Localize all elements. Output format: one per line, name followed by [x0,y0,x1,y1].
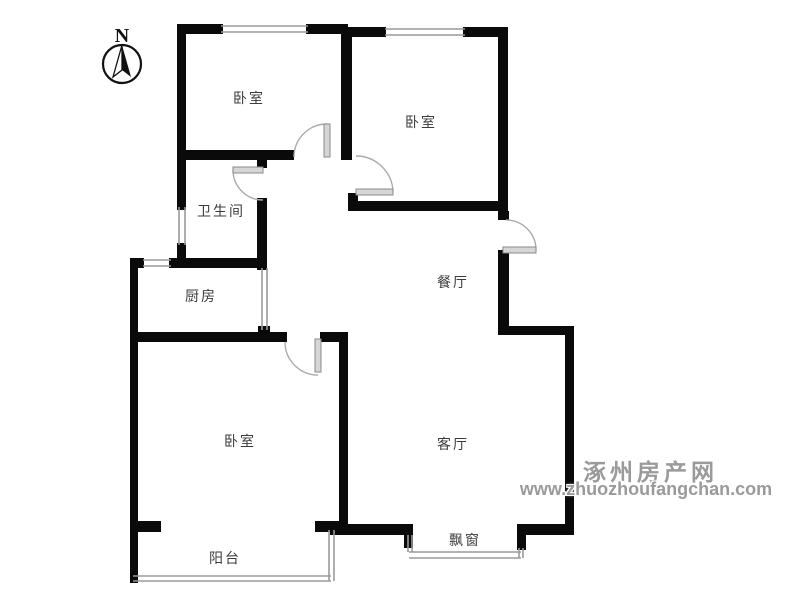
window-bedroom2-icon [385,29,465,35]
wall-segment [177,150,186,210]
door-arc-bedroom1-icon [294,124,327,157]
door-leaf-bedroom1-icon [324,124,330,157]
room-label-dining-room: 餐厅 [437,272,469,292]
door-leaf-bedroom3-icon [315,339,321,372]
bay-window-sill-icon [409,552,521,558]
door-arc-bathroom-icon [233,170,263,200]
wall-segment [498,250,509,330]
window-bathroom-icon [179,207,185,245]
wall-segment [517,524,526,550]
wall-segment [320,332,348,342]
room-label-bedroom-top-right: 卧室 [405,112,437,132]
room-label-bathroom: 卫生间 [197,201,245,221]
wall-segment [498,326,574,335]
wall-segment [341,27,352,160]
room-label-bedroom-top-left: 卧室 [233,88,265,108]
wall-segment [177,24,186,160]
wall-segment [257,198,267,270]
window-bedroom1-icon [221,26,308,32]
door-leaf-bathroom-icon [233,167,263,173]
wall-segment [498,211,509,220]
door-arc-entry-icon [506,220,536,250]
door-arc-bedroom3-icon [285,342,318,375]
room-label-living-room: 客厅 [437,434,469,454]
floor-plan-drawing: N [0,0,800,600]
room-label-bay-window: 飘窗 [449,530,481,550]
wall-segment [565,326,574,535]
north-compass-icon: N [103,25,141,83]
wall-segment [350,201,498,211]
wall-segment [257,150,267,168]
wall-segment [258,326,270,334]
door-arc-bedroom2-icon [356,156,393,193]
kitchen-sliding-door-icon [262,268,267,330]
wall-segment [130,258,138,583]
floor-plan: N 卧室 卧室 卫生间 厨房 餐厅 卧室 客厅 阳台 飘窗 涿州房产网 www.… [0,0,800,600]
balcony-rail-bottom-icon [133,576,331,581]
door-leaf-bedroom2-icon [356,189,393,195]
room-label-balcony: 阳台 [209,548,241,568]
window-kitchen-icon [143,260,171,266]
wall-segment [177,258,265,268]
wall-segment [177,150,294,160]
balcony-rail-right-icon [329,530,334,581]
room-label-kitchen: 厨房 [185,286,217,306]
wall-segment [348,193,358,211]
door-leaf-entry-icon [503,247,536,253]
wall-segment [339,342,348,527]
watermark-site-url: www.zhuozhoufangchan.com [512,479,780,500]
wall-segment [130,521,161,532]
wall-segment [341,27,386,37]
room-label-bedroom-bottom-left: 卧室 [224,431,256,451]
wall-segment [315,521,348,532]
wall-segment [498,27,508,211]
compass-letter: N [115,25,130,47]
